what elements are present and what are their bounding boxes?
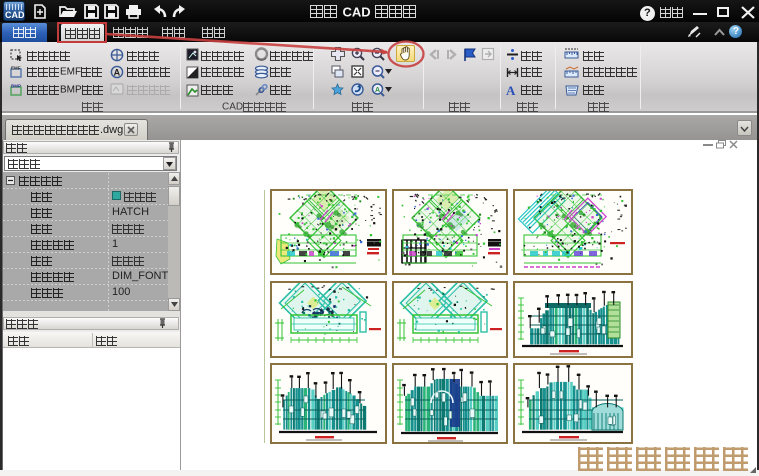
svg-text:A: A [114, 68, 121, 78]
svg-text:A: A [375, 87, 380, 94]
svg-text:BMP: BMP [11, 84, 21, 89]
svg-text:EMF: EMF [11, 66, 21, 71]
